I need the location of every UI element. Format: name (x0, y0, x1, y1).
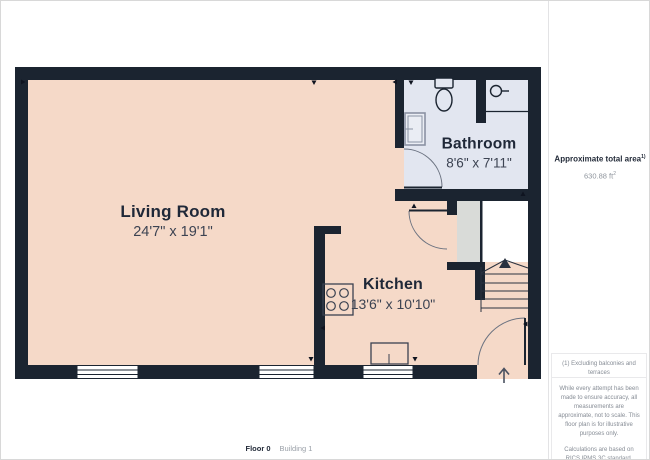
room-dimensions: 13'6" x 10'10" (351, 296, 436, 312)
floorplan: Living Room 24'7" x 19'1" Kitchen 13'6" … (1, 1, 548, 460)
kitchen-sink-icon (371, 343, 408, 364)
building-label[interactable]: Building 1 (280, 444, 313, 453)
cupboard-floor (457, 201, 480, 262)
wall-bathroom-divider (476, 80, 486, 123)
wall-left (15, 67, 28, 379)
floorplan-page: Living Room 24'7" x 19'1" Kitchen 13'6" … (0, 0, 650, 460)
wall-kitchen-divider-cap (314, 226, 341, 234)
wall-stub (447, 201, 457, 215)
window-2 (259, 366, 314, 379)
living-room-label: Living Room 24'7" x 19'1" (120, 202, 225, 240)
wall-right (528, 67, 541, 379)
room-name: Living Room (120, 202, 225, 222)
wall-hall-vertical (475, 262, 485, 300)
floorplan-drawing (1, 1, 548, 460)
window-3 (363, 366, 413, 379)
total-area-value: 630.88 ft2 (549, 171, 650, 181)
room-name: Kitchen (351, 276, 436, 294)
room-dimensions: 8'6" x 7'11" (442, 156, 517, 171)
stair-void (482, 201, 528, 262)
calculation-note: Calculations are based on RICS IPMS 3C s… (557, 446, 641, 460)
kitchen-label: Kitchen 13'6" x 10'10" (351, 276, 436, 312)
disclaimer-text: While every attempt has been made to ens… (557, 385, 641, 439)
window-1 (77, 366, 138, 379)
toilet-icon (435, 78, 453, 111)
room-name: Bathroom (442, 136, 517, 154)
floor-selector: Floor 0Building 1 (246, 444, 313, 453)
disclaimer-box: While every attempt has been made to ens… (551, 377, 647, 460)
footnote-text: (1) Excluding balconies and terraces (562, 361, 636, 376)
wall-bathroom-bottom (395, 189, 541, 201)
total-area-title: Approximate total area1) (549, 154, 650, 164)
wall-bathroom-left (395, 80, 404, 148)
info-sidebar: Approximate total area1) 630.88 ft2 (1) … (548, 1, 650, 460)
floor-label[interactable]: Floor 0 (246, 444, 271, 453)
wall-void-edge (480, 201, 483, 262)
entrance-opening (477, 365, 528, 379)
radiator-icon (405, 113, 425, 145)
wall-top (15, 67, 541, 80)
bathroom-label: Bathroom 8'6" x 7'11" (442, 136, 517, 171)
floors (28, 80, 528, 365)
room-dimensions: 24'7" x 19'1" (120, 224, 225, 240)
total-area-block: Approximate total area1) 630.88 ft2 (549, 154, 650, 180)
